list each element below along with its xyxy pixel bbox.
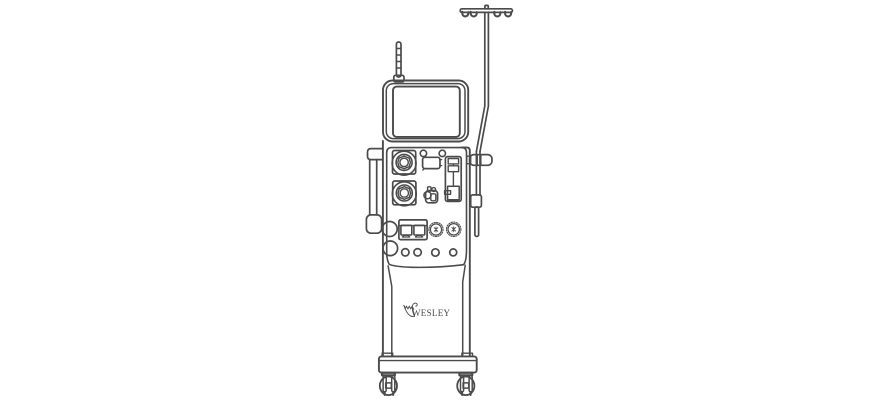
svg-text:WESLEY: WESLEY — [412, 308, 450, 318]
